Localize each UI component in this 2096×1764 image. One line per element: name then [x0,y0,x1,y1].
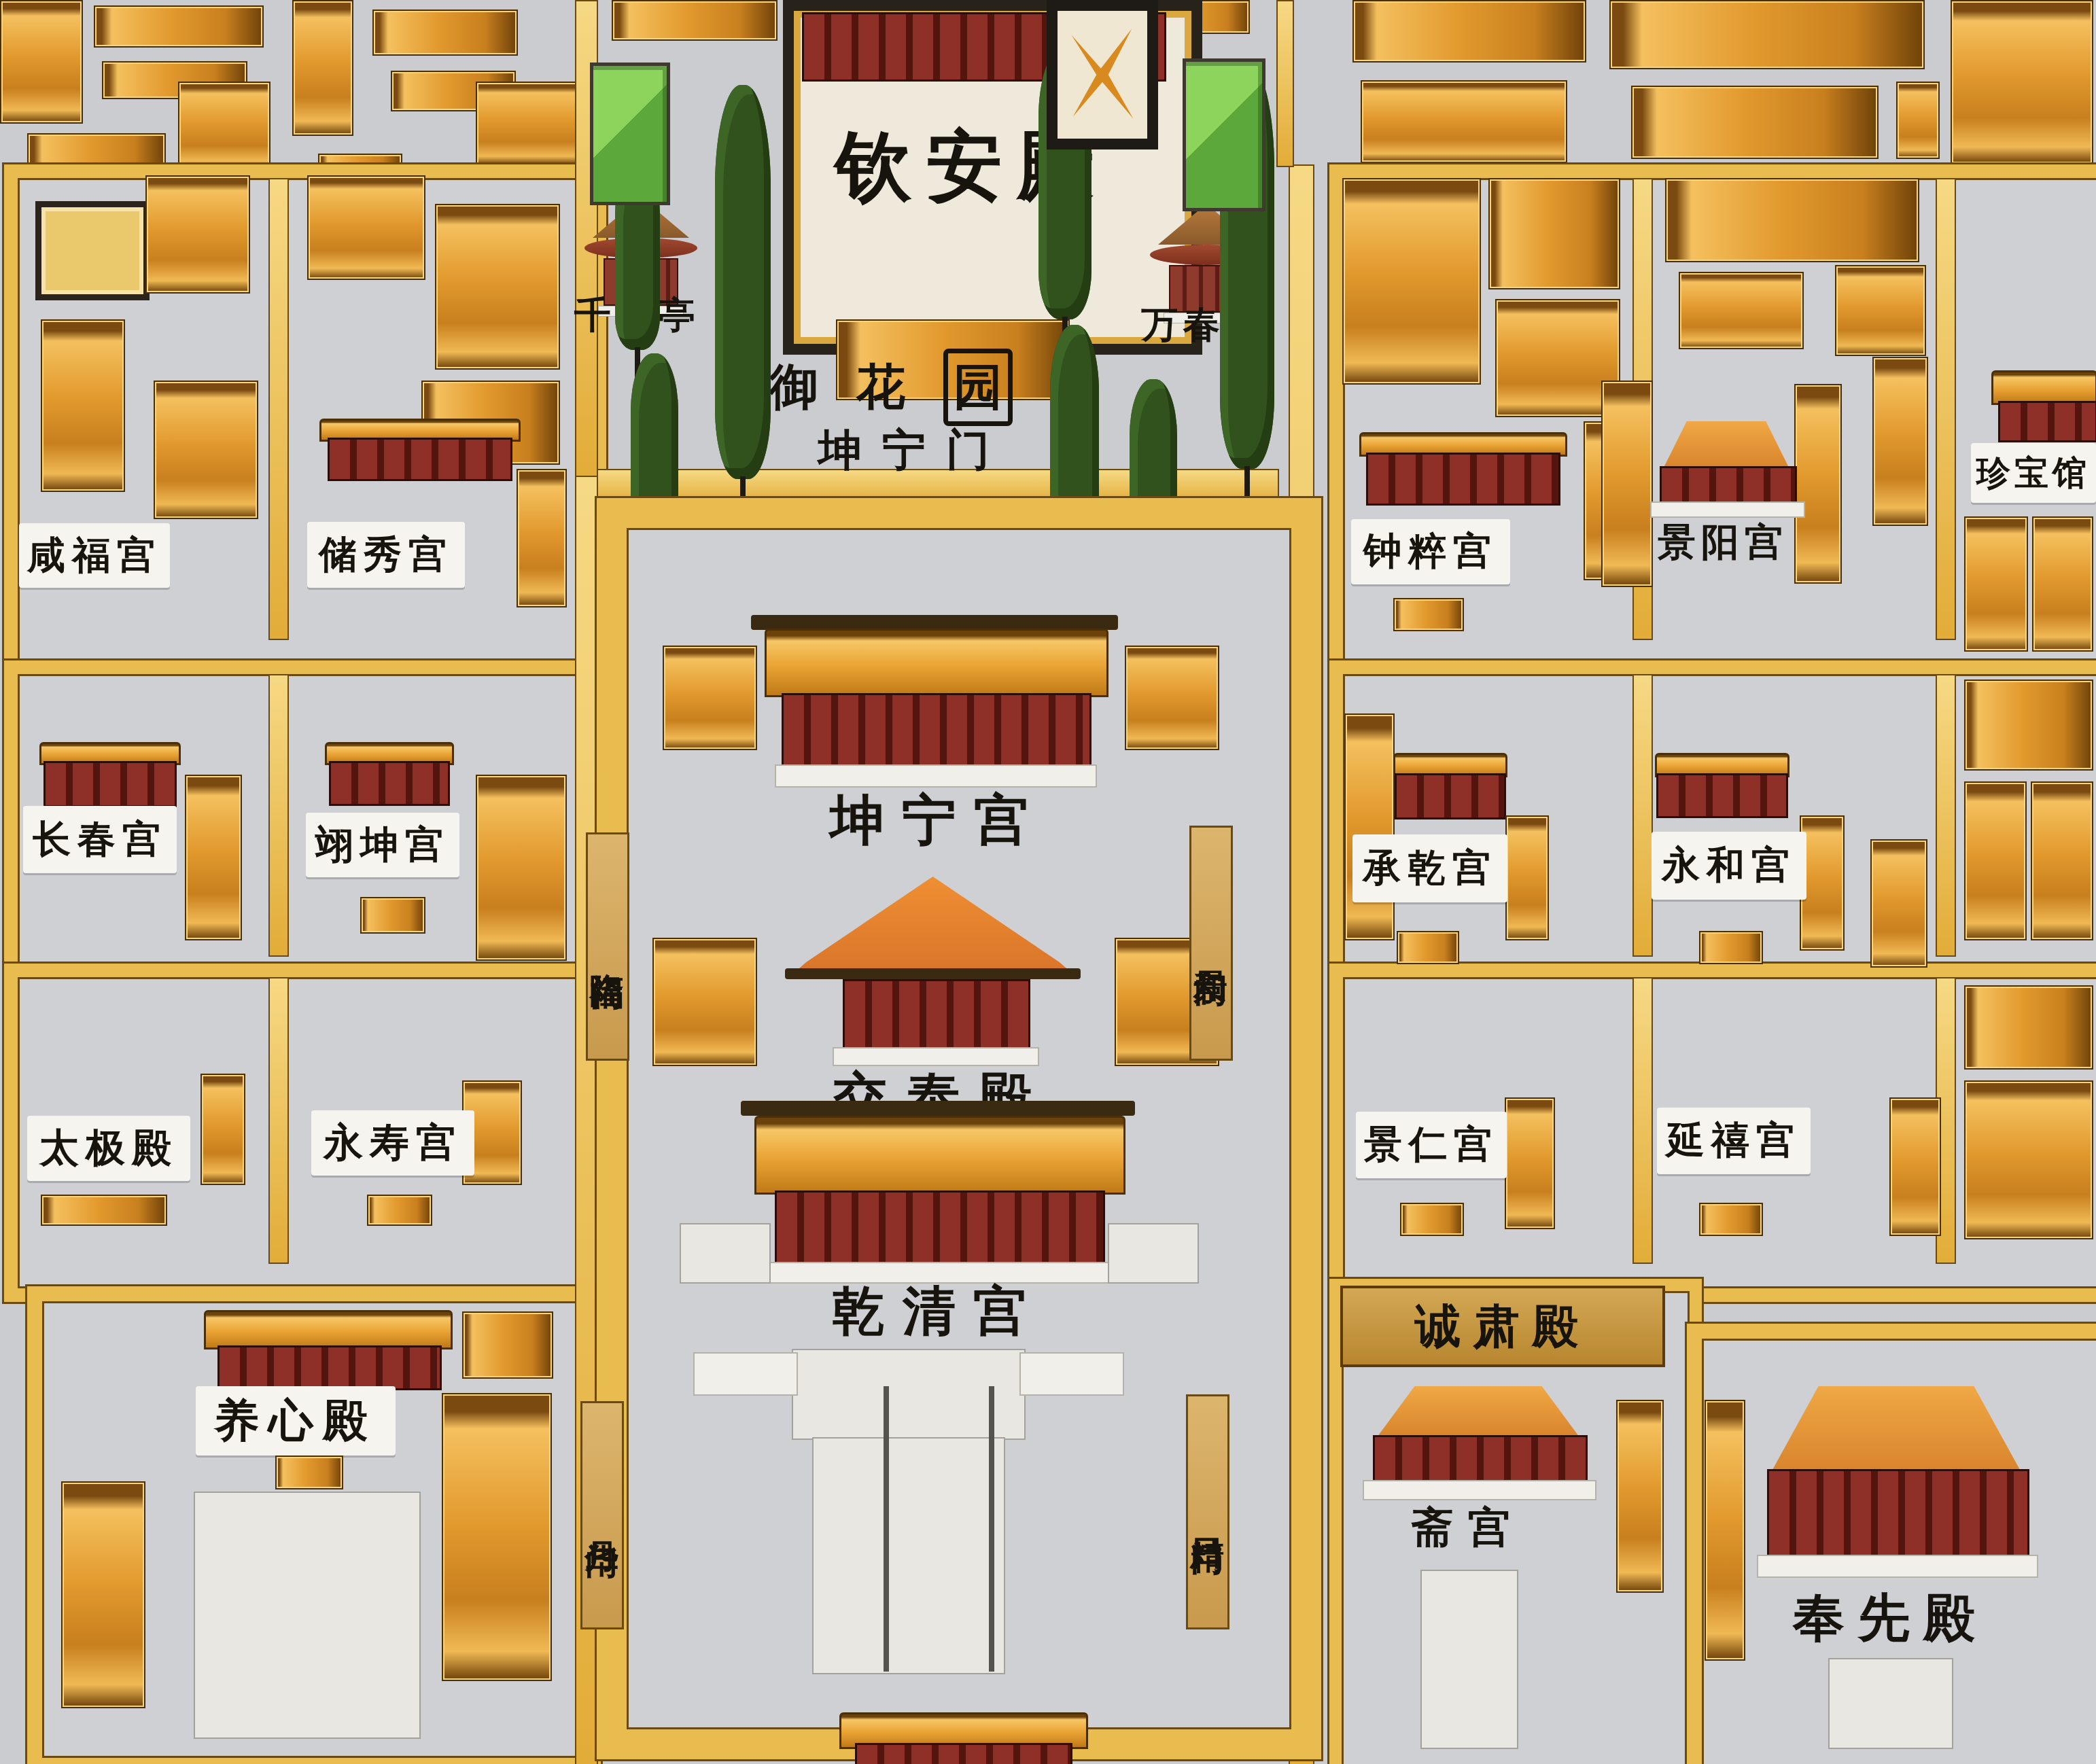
wall-divider [1936,178,1956,640]
label-fengxiandian: 奉先殿 [1767,1581,2014,1657]
cypress-tree-icon [715,85,771,479]
building-roof-block [1872,357,1928,526]
label-yonghegong: 永和宫 [1652,832,1806,900]
label-jingyanggong: 景阳宫 [1645,514,1801,572]
building-roof-block [145,175,250,294]
white-terrace [1828,1658,1953,1749]
building-roof-block [94,5,264,48]
wall-divider [1936,674,1956,957]
label-jingrengong: 景仁宫 [1356,1112,1507,1178]
building-roof-block [1964,516,2028,652]
building-roof-block [1794,384,1842,584]
building-roof-block [1344,713,1395,940]
label-yikungong: 翊坤宫 [306,813,459,877]
building-roof-block [1951,0,2093,164]
building-roof-block [1505,815,1549,940]
building-roof-block [1699,1203,1763,1236]
hall-facade-icon [1366,453,1560,506]
side-hall-block [1125,646,1219,750]
label-xianfugong: 咸福宫 [19,523,170,588]
building-roof-block [1631,86,1879,159]
label-taijidian: 太极殿 [27,1116,190,1181]
side-hall-block [663,646,757,750]
building-roof-block [1964,781,2027,940]
label-yuhuayuan-char-boxed: 园 [943,349,1013,426]
building-roof-block [2032,516,2093,652]
compass-icon [1047,0,1158,149]
garden-rockery-panel [590,63,670,205]
building-roof-block [1488,178,1620,289]
label-chengqiangong: 承乾宫 [1352,834,1507,902]
wall-divider [268,178,289,640]
label-yongshougong: 永寿宫 [311,1110,474,1176]
building-roof-block [1505,1097,1555,1229]
white-terrace [1420,1570,1518,1749]
terrace-rail [989,1386,994,1672]
building-roof-block [0,0,83,124]
building-roof-block [200,1074,245,1185]
gate-facade-icon [855,1743,1072,1764]
building-roof-block [1964,985,2093,1070]
qianqinggong-ridge [741,1101,1135,1116]
fengxiandian-facade-icon [1767,1469,2029,1559]
label-longfumen: 隆福门 [586,832,629,1061]
building-roof-block [41,319,125,492]
hall-facade-icon [1660,466,1797,506]
building-roof-block [1609,0,1925,69]
yangxindian-facade-icon [217,1345,442,1390]
hall-facade-icon [1395,773,1506,819]
building-roof-block [372,10,518,56]
building-roof-block [442,1393,552,1681]
wall-divider [268,977,289,1264]
wall-divider [268,674,289,957]
building-roof-block [612,0,778,41]
building-roof-block [1964,1080,2093,1239]
building-roof-block [2031,781,2093,940]
building-roof-block [307,175,425,280]
fengxiandian-base [1757,1555,2038,1578]
side-terrace [680,1223,771,1284]
hall-facade-icon [329,761,450,806]
forbidden-city-map: 咸福宫 储秀宫 长春宫 翊坤宫 太极殿 永寿宫 养心殿 钦安殿 千秋亭 万春亭 [0,0,2096,1764]
label-yuhuayuan: 御 花 园 [769,353,1013,421]
white-terrace [194,1492,421,1739]
hall-facade-icon [43,761,177,807]
building-roof-block [1896,82,1940,159]
building-roof-block [1397,931,1459,964]
jiaotaidian-facade-icon [843,979,1030,1051]
building-roof-block [1705,1400,1745,1661]
qianqinggong-roof-icon [754,1116,1125,1195]
building-roof-block [1889,1097,1941,1236]
building-roof-block [1400,1203,1464,1236]
tree-trunk [1244,466,1250,501]
building-roof-block [1352,0,1586,63]
building-roof-block [462,1311,553,1379]
label-yuehuamen: 月华门 [580,1401,624,1629]
label-kunningmen: 坤宁门 [782,419,1047,481]
label-chuxiugong: 储秀宫 [307,522,465,588]
building-roof-block [1361,80,1567,163]
building-roof-block [1964,680,2093,771]
hall-facade-icon [1998,401,2096,442]
side-terrace [1108,1223,1199,1284]
side-hall-block [652,938,757,1066]
label-zhenbaoguan: 珍宝馆 [1971,443,2096,503]
building-roof-block [275,1456,343,1489]
label-changchungong: 长春宫 [23,806,177,873]
label-rijingmen: 日精门 [1186,1394,1229,1629]
building-roof-block [476,82,580,166]
building-roof-block [61,1481,145,1708]
building-roof-block [1699,931,1763,964]
building-roof-block [1870,839,1927,968]
hall-roof-icon [1991,370,2096,405]
hall-facade-icon [328,438,512,481]
building-roof-block [1665,178,1919,262]
compass-needle [1066,22,1139,127]
terrace-wing [693,1352,798,1396]
kunninggong-ridge [751,615,1118,630]
label-qianqinggong: 乾清宫 [809,1276,1067,1347]
label-yangxindian: 养心殿 [196,1386,396,1456]
building-roof-block [1342,178,1481,385]
wall-divider [1632,977,1653,1264]
building-roof-block [517,469,567,607]
building-roof-block [292,0,353,136]
garden-rockery-panel [1183,58,1265,211]
kunninggong-facade-icon [782,693,1091,769]
building-roof-block [178,82,270,171]
label-yuhuayuan-char: 花 [856,355,905,420]
label-zhongcuigong: 钟粹宫 [1351,519,1510,584]
building-roof-block [1679,272,1804,349]
label-yanxigong: 延禧宫 [1657,1108,1811,1174]
building-roof-block [1835,265,1926,356]
marble-terrace-ramp [812,1437,1005,1674]
building-roof-block [1616,1400,1664,1593]
label-yuhuayuan-char: 御 [769,355,818,420]
building-roof-block [185,775,242,940]
yangxindian-roof-icon [204,1310,453,1350]
alley-wall-east [1276,0,1294,167]
terrace-wing [1019,1352,1124,1396]
building-roof-block [360,897,425,934]
label-kunninggong: 坤宁宫 [805,781,1070,860]
building-roof-block [154,381,258,519]
courtyard-gate-icon [35,201,150,300]
label-chengsudian: 诚肃殿 [1340,1286,1665,1367]
label-jinghemen: 景和门 [1189,826,1233,1061]
building-roof-block [367,1195,432,1226]
zhaigong-facade-icon [1373,1435,1588,1484]
wall-divider [1632,674,1653,957]
building-roof-block [435,204,560,370]
building-roof-block [476,775,567,961]
kunninggong-roof-icon [765,629,1108,697]
building-roof-block [41,1195,167,1226]
hall-facade-icon [1656,773,1788,818]
building-roof-block [1393,598,1464,631]
label-zhaigong: 斋宫 [1386,1495,1550,1560]
qianqinggong-facade-icon [775,1190,1105,1266]
jiaotaidian-eave [785,968,1081,979]
terrace-rail [884,1386,889,1672]
